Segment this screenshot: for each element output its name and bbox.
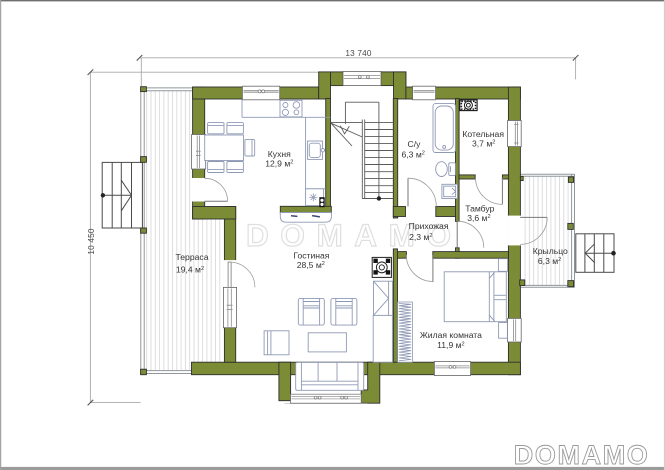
svg-text:3,6 м2: 3,6 м2: [467, 213, 490, 223]
svg-text:Крыльцо: Крыльцо: [533, 246, 568, 256]
svg-text:С/у: С/у: [408, 139, 422, 149]
svg-text:Жилая комната: Жилая комната: [420, 330, 482, 340]
svg-text:11,9 м2: 11,9 м2: [437, 340, 465, 350]
svg-text:13 740: 13 740: [345, 49, 371, 58]
svg-text:Прихожая: Прихожая: [409, 221, 449, 231]
svg-text:Кухня: Кухня: [268, 149, 291, 159]
svg-text:Тамбур: Тамбур: [465, 203, 494, 213]
svg-text:10 450: 10 450: [87, 228, 96, 254]
svg-text:6,3 м2: 6,3 м2: [402, 149, 425, 159]
svg-text:12,9 м2: 12,9 м2: [265, 158, 293, 168]
svg-text:6,3 м2: 6,3 м2: [538, 256, 561, 266]
svg-text:3,7 м2: 3,7 м2: [472, 138, 495, 148]
svg-text:19,4 м2: 19,4 м2: [176, 265, 204, 275]
svg-text:28,5 м2: 28,5 м2: [297, 260, 325, 270]
svg-text:2,3 м2: 2,3 м2: [409, 232, 432, 242]
svg-text:Терраса: Терраса: [176, 252, 209, 262]
